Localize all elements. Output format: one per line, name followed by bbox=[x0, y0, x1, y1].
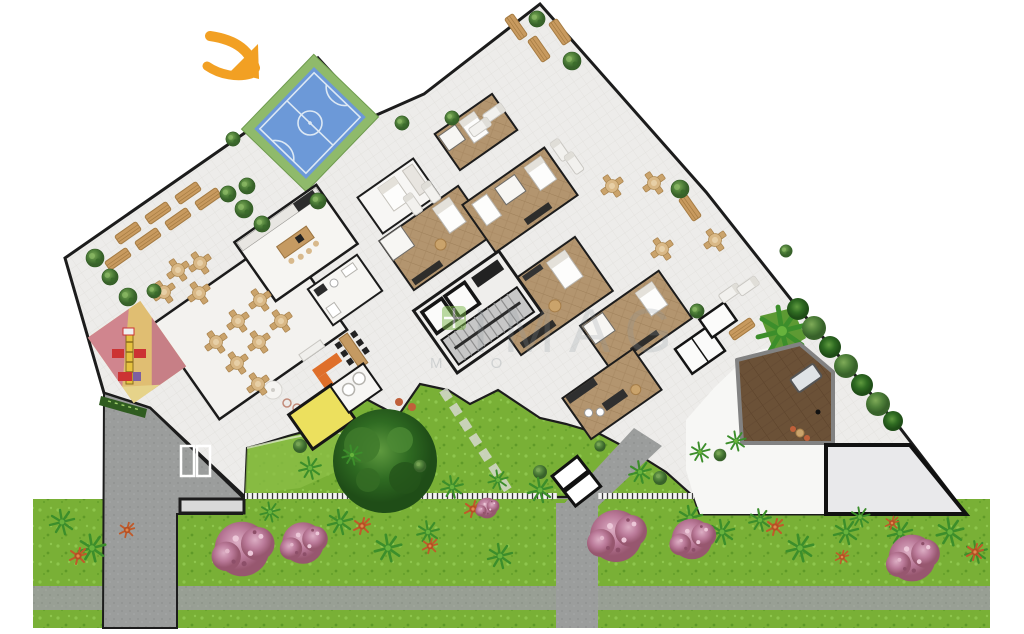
tree bbox=[147, 284, 161, 298]
footpath-vertical bbox=[556, 503, 598, 628]
deck-chair bbox=[804, 435, 810, 441]
tree bbox=[395, 116, 409, 130]
bush bbox=[653, 471, 667, 485]
rug-center bbox=[271, 388, 275, 392]
bush bbox=[533, 465, 547, 479]
play-seat bbox=[118, 372, 132, 381]
tree bbox=[671, 180, 689, 198]
tree bbox=[235, 200, 253, 218]
tree bbox=[690, 304, 704, 318]
planter-pot bbox=[408, 403, 416, 411]
bush bbox=[594, 440, 605, 451]
tree bbox=[102, 269, 118, 285]
tree bbox=[239, 178, 255, 194]
gate-slab bbox=[180, 499, 244, 513]
play-seat bbox=[134, 349, 146, 358]
annotation-arrow bbox=[207, 36, 259, 79]
play-seat bbox=[133, 372, 141, 381]
tree bbox=[119, 288, 137, 306]
deck-table bbox=[796, 429, 804, 437]
watermark-subtext: M O bbox=[430, 355, 524, 372]
tree bbox=[563, 52, 581, 70]
tree bbox=[86, 249, 104, 267]
deck-chair bbox=[790, 426, 796, 432]
tree bbox=[226, 132, 240, 146]
play-top bbox=[123, 328, 134, 335]
bush bbox=[293, 439, 307, 453]
watermark-logo bbox=[442, 306, 466, 330]
paved-court bbox=[826, 445, 966, 514]
bush bbox=[714, 449, 727, 462]
wood-deck bbox=[737, 344, 833, 443]
site-plan-canvas: IMAG M O bbox=[0, 0, 1024, 634]
deck-spot bbox=[816, 410, 821, 415]
tree bbox=[254, 216, 270, 232]
fence-mid bbox=[598, 493, 694, 499]
floor-plan-image: IMAG M O bbox=[0, 0, 1024, 634]
tree bbox=[445, 111, 459, 125]
tree bbox=[529, 11, 545, 27]
planter-pot bbox=[395, 398, 403, 406]
tree bbox=[310, 193, 326, 209]
tree bbox=[220, 186, 236, 202]
tree bbox=[780, 245, 793, 258]
play-seat bbox=[112, 349, 124, 358]
bush bbox=[414, 460, 427, 473]
